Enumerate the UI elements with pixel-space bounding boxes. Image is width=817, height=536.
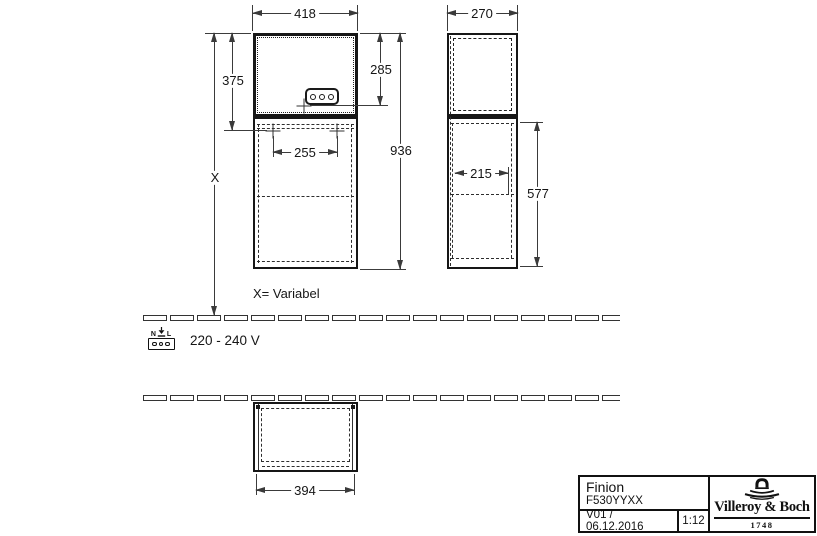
front-view-lower-cabinet [253,118,358,269]
extension-line [517,5,518,31]
dim-label: 418 [291,7,319,21]
product-name: Finion [586,479,702,495]
dashed-line [451,123,514,124]
voltage-note: 220 - 240 V [190,333,260,348]
extension-line [252,5,253,31]
socket-center-marker [297,99,312,114]
dashed-line [258,124,259,263]
dashed-line [262,466,349,467]
dashed-line [451,258,514,259]
fixing-point-marker [256,405,260,409]
side-view-upper-shelf [447,33,518,118]
dashed-shelf-line [451,194,514,195]
plan-hidden-edge [261,408,350,462]
dashed-door-edge [450,36,451,266]
neutral-label: N [151,331,156,338]
villeroy-boch-logo: Villeroy & Boch 1748 [710,477,814,531]
dim-label: 394 [291,484,319,498]
technical-drawing-canvas: 418 270 375 X 285 936 255 215 577 394 X=… [0,0,817,536]
upper-shelf-hidden-edge [453,38,512,111]
plan-inner-edge [258,404,259,470]
dim-label: 215 [467,167,495,181]
version-date: V01 / 06.12.2016 [580,511,677,531]
brand-name: Villeroy & Boch [714,500,809,519]
line-label: L [167,331,171,338]
power-socket-symbol: N L [146,326,176,350]
dim-label: 936 [387,144,415,158]
dashed-line [511,123,512,258]
plan-inner-edge [352,404,353,470]
brand-year: 1748 [751,520,774,530]
product-cell: Finion F530YYXX [580,477,708,509]
product-code: F530YYXX [586,495,702,509]
dim-label: 255 [291,146,319,160]
dim-label: 285 [367,63,395,77]
earth-icon [157,327,166,338]
variable-note: X= Variabel [253,286,320,301]
dashed-line [452,123,453,258]
socket-box-icon [148,338,175,350]
drawing-scale: 1:12 [677,511,708,531]
dim-label: 577 [524,187,552,201]
extension-line [357,5,358,31]
title-block-info: Finion F530YYXX V01 / 06.12.2016 1:12 [580,477,710,531]
fixing-point-marker [351,405,355,409]
dim-label: X [208,171,223,185]
dashed-shelf-line [257,196,354,197]
dashed-line [351,124,352,263]
dim-label: 270 [468,7,496,21]
dashed-line [257,261,354,262]
extension-line [447,5,448,31]
fountain-icon [734,478,790,500]
revision-row: V01 / 06.12.2016 1:12 [580,509,708,531]
title-block: Finion F530YYXX V01 / 06.12.2016 1:12 Vi… [578,475,816,533]
wall-hatch-line [143,395,620,401]
dim-label: 375 [219,74,247,88]
